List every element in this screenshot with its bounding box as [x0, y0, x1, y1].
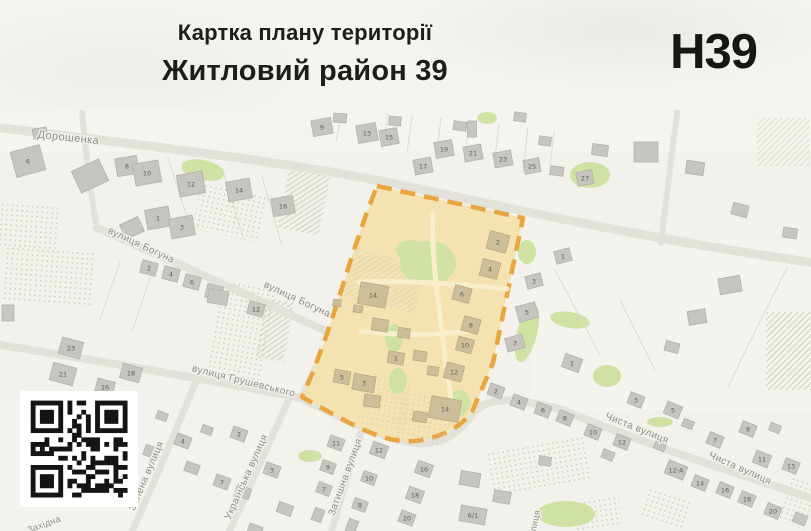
qr-module	[81, 401, 86, 406]
qr-module	[91, 474, 96, 479]
building	[782, 227, 797, 239]
qr-module	[40, 465, 45, 470]
qr-module	[68, 479, 73, 484]
qr-module	[95, 488, 100, 493]
qr-module	[123, 410, 128, 415]
qr-module	[40, 483, 45, 488]
qr-module	[58, 401, 63, 406]
building	[591, 143, 608, 156]
qr-module	[54, 493, 59, 498]
qr-module	[86, 488, 91, 493]
qr-module	[118, 437, 123, 442]
qr-module	[77, 483, 82, 488]
qr-module	[49, 428, 54, 433]
district-code: Н39	[670, 24, 757, 80]
building-number: 12	[375, 446, 383, 454]
qr-module	[40, 401, 45, 406]
qr-module	[86, 414, 91, 419]
qr-module	[49, 451, 54, 456]
building-number: 10	[365, 474, 373, 482]
building-number: 1	[561, 252, 565, 260]
qr-module	[72, 437, 77, 442]
qr-module	[104, 419, 109, 424]
qr-module	[86, 483, 91, 488]
qr-module	[104, 460, 109, 465]
qr-module	[104, 488, 109, 493]
building-number: 10	[461, 341, 469, 349]
building	[333, 299, 342, 307]
building-number: 12	[187, 180, 195, 188]
building-number: 5	[340, 373, 344, 381]
building-number: 18	[127, 369, 135, 377]
qr-module	[58, 405, 63, 410]
qr-module	[31, 474, 36, 479]
qr-module	[31, 424, 36, 429]
building	[513, 112, 526, 123]
qr-module	[123, 405, 128, 410]
qr-module	[100, 401, 105, 406]
qr-module	[77, 493, 82, 498]
building	[413, 350, 427, 362]
qr-module	[58, 479, 63, 484]
qr-module	[45, 465, 50, 470]
qr-module	[45, 419, 50, 424]
qr-module	[123, 419, 128, 424]
building-number: 9	[746, 425, 750, 433]
qr-module	[86, 428, 91, 433]
zone-green	[396, 240, 424, 260]
building-number: 8	[358, 501, 362, 509]
building	[397, 327, 410, 339]
building-number: 7	[322, 485, 326, 493]
qr-module	[114, 488, 119, 493]
qr-module	[100, 470, 105, 475]
qr-module	[95, 437, 100, 442]
building-number: 25	[528, 162, 536, 170]
building-number: 4	[181, 437, 185, 445]
building-number: 13	[363, 129, 371, 137]
qr-module	[86, 437, 91, 442]
qr-module	[49, 465, 54, 470]
building	[2, 305, 14, 321]
qr-module	[40, 474, 45, 479]
building-number: 3	[634, 396, 638, 404]
qr-module	[86, 474, 91, 479]
qr-module	[95, 442, 100, 447]
building-number: 27	[581, 174, 589, 182]
qr-module	[68, 405, 73, 410]
building-number: 6	[26, 157, 30, 165]
qr-module	[58, 456, 63, 461]
qr-module	[72, 479, 77, 484]
building-number: 18	[743, 495, 751, 503]
qr-module	[95, 470, 100, 475]
qr-module	[118, 442, 123, 447]
building-number: 16	[279, 202, 287, 210]
qr-module	[58, 414, 63, 419]
zone-green	[389, 368, 407, 394]
qr-module	[49, 479, 54, 484]
building-number: 4	[488, 265, 492, 273]
qr-module	[49, 419, 54, 424]
qr-module	[91, 488, 96, 493]
doc-type-label: Картка плану території	[80, 20, 530, 46]
qr-module	[123, 456, 128, 461]
building-number: 23	[67, 344, 75, 352]
qr-module	[114, 442, 119, 447]
qr-module	[35, 451, 40, 456]
qr-module	[31, 465, 36, 470]
qr-module	[109, 460, 114, 465]
qr-module	[68, 410, 73, 415]
qr-module	[35, 401, 40, 406]
qr-module	[109, 414, 114, 419]
qr-module	[31, 442, 36, 447]
building-number: 6	[190, 278, 194, 286]
qr-module	[72, 470, 77, 475]
qr-module	[31, 428, 36, 433]
qr-module	[45, 410, 50, 415]
building-number: 6	[541, 406, 545, 414]
qr-module	[49, 414, 54, 419]
qr-module	[86, 465, 91, 470]
qr-module	[123, 424, 128, 429]
qr-module	[104, 479, 109, 484]
qr-module	[40, 428, 45, 433]
qr-module	[95, 410, 100, 415]
qr-module	[31, 401, 36, 406]
qr-module	[109, 428, 114, 433]
building-number: 13	[787, 462, 795, 470]
qr-module	[104, 410, 109, 415]
building-number: 9	[320, 123, 324, 131]
building	[453, 121, 467, 132]
building	[468, 121, 477, 137]
qr-module	[54, 428, 59, 433]
qr-module	[114, 447, 119, 452]
qr-module	[104, 470, 109, 475]
qr-module	[86, 442, 91, 447]
qr-module	[123, 451, 128, 456]
qr-module	[54, 447, 59, 452]
qr-module	[63, 456, 68, 461]
building-number: 8	[469, 321, 473, 329]
qr-module	[114, 410, 119, 415]
qr-module	[77, 414, 82, 419]
qr-module	[91, 465, 96, 470]
qr-module	[86, 479, 91, 484]
qr-module	[45, 493, 50, 498]
qr-module	[95, 414, 100, 419]
qr-module	[31, 488, 36, 493]
building-number: 18	[411, 491, 419, 499]
qr-module	[104, 414, 109, 419]
building-number: 14	[369, 291, 377, 299]
qr-module	[49, 493, 54, 498]
building-number: 6/1	[468, 511, 478, 519]
qr-module	[58, 465, 63, 470]
building-number: 12	[450, 368, 458, 376]
qr-module	[49, 474, 54, 479]
building-number: 3	[362, 379, 366, 387]
qr-module	[77, 460, 82, 465]
qr-module	[31, 447, 36, 452]
building-number: 21	[469, 149, 477, 157]
building-number: 1	[156, 214, 160, 222]
qr-module	[40, 410, 45, 415]
building-number: 7	[220, 478, 224, 486]
qr-module	[77, 442, 82, 447]
qr-module	[118, 428, 123, 433]
qr-module	[109, 419, 114, 424]
qr-module	[35, 442, 40, 447]
building	[538, 136, 551, 147]
qr-module	[114, 456, 119, 461]
qr-module	[54, 401, 59, 406]
qr-module	[68, 483, 73, 488]
qr-module	[100, 428, 105, 433]
qr-module	[123, 474, 128, 479]
qr-module	[45, 474, 50, 479]
qr-module	[31, 451, 36, 456]
qr-module	[95, 424, 100, 429]
qr-module	[114, 470, 119, 475]
qr-module	[72, 456, 77, 461]
qr-module	[81, 437, 86, 442]
building-number: 2	[496, 238, 500, 246]
qr-module	[114, 474, 119, 479]
building-number: 7	[513, 339, 517, 347]
building-number: 10	[143, 169, 151, 177]
building-number: 8	[563, 414, 567, 422]
qr-module	[45, 428, 50, 433]
building-number: 2	[147, 264, 151, 272]
qr-module	[95, 460, 100, 465]
qr-module	[31, 493, 36, 498]
building	[207, 288, 229, 305]
building-number: 9	[326, 463, 330, 471]
qr-module	[58, 437, 63, 442]
qr-module	[40, 442, 45, 447]
building-number: 16	[101, 383, 109, 391]
qr-module	[95, 428, 100, 433]
qr-module	[123, 465, 128, 470]
building-number: 4	[517, 398, 521, 406]
qr-module	[72, 493, 77, 498]
qr-module	[114, 465, 119, 470]
building-number: 12-А	[668, 466, 684, 474]
qr-module	[114, 479, 119, 484]
qr-module	[118, 479, 123, 484]
qr-module	[114, 414, 119, 419]
qr-module	[58, 483, 63, 488]
qr-module	[54, 465, 59, 470]
qr-module	[45, 442, 50, 447]
qr-module	[45, 451, 50, 456]
building-number: 20	[403, 514, 411, 522]
building	[685, 160, 705, 175]
building-number: 19	[440, 145, 448, 153]
building	[538, 456, 551, 467]
qr-module	[109, 410, 114, 415]
building-number: 17	[419, 162, 427, 170]
building-number: 15	[385, 133, 393, 141]
qr-module	[91, 456, 96, 461]
qr-module	[81, 451, 86, 456]
building-number: 14	[235, 186, 243, 194]
qr-module	[40, 451, 45, 456]
qr-module	[49, 410, 54, 415]
qr-module	[86, 424, 91, 429]
building	[634, 142, 658, 162]
plan-card: 6810121416139131517192123252724681223211…	[0, 0, 811, 531]
qr-module	[81, 456, 86, 461]
building-number: 8	[125, 162, 129, 170]
qr-module	[118, 488, 123, 493]
qr-module	[123, 401, 128, 406]
qr-module	[58, 493, 63, 498]
building-number: 5	[525, 308, 529, 316]
qr-module	[45, 483, 50, 488]
qr-module	[114, 401, 119, 406]
building-number: 14	[441, 405, 449, 413]
qr-module	[77, 401, 82, 406]
building-number: 7	[713, 436, 717, 444]
qr-module	[31, 410, 36, 415]
building-number: 16	[721, 486, 729, 494]
qr-module	[68, 447, 73, 452]
qr-module	[49, 483, 54, 488]
qr-module	[58, 419, 63, 424]
building	[687, 309, 707, 326]
qr-module	[77, 470, 82, 475]
qr-module	[123, 414, 128, 419]
qr-module	[40, 493, 45, 498]
title-block: Картка плану території Житловий район 39	[80, 0, 530, 88]
qr-module	[95, 483, 100, 488]
qr-module	[68, 465, 73, 470]
qr-module	[49, 401, 54, 406]
qr-module	[118, 401, 123, 406]
qr-module	[72, 433, 77, 438]
qr-module	[123, 442, 128, 447]
card-header: Картка плану території Житловий район 39…	[0, 0, 811, 110]
building	[353, 305, 363, 313]
building	[459, 470, 481, 487]
qr-module	[91, 442, 96, 447]
qr-module	[58, 410, 63, 415]
qr-module	[114, 460, 119, 465]
building-number: 11	[758, 455, 766, 463]
qr-module	[31, 479, 36, 484]
qr-module	[104, 428, 109, 433]
building-number: 1	[570, 359, 574, 367]
qr-module	[114, 428, 119, 433]
building-number: 3	[180, 223, 184, 231]
building	[427, 366, 439, 376]
qr-module	[81, 410, 86, 415]
building-number: 12	[618, 438, 626, 446]
qr-module	[40, 414, 45, 419]
qr-module	[77, 433, 82, 438]
qr-module	[77, 424, 82, 429]
qr-module	[45, 479, 50, 484]
qr-module	[100, 488, 105, 493]
qr-module	[58, 428, 63, 433]
building	[493, 490, 512, 505]
building-number: 10	[589, 428, 597, 436]
qr-module	[35, 493, 40, 498]
qr-module	[77, 428, 82, 433]
building-number: 1	[394, 354, 398, 362]
qr-module	[118, 465, 123, 470]
qr-module	[81, 483, 86, 488]
qr-module	[104, 442, 109, 447]
qr-module	[58, 447, 63, 452]
building	[363, 394, 381, 408]
building	[389, 116, 402, 126]
building-number: 12	[252, 305, 260, 313]
qr-module	[31, 405, 36, 410]
qr-module	[68, 401, 73, 406]
qr-module	[40, 479, 45, 484]
qr-code	[20, 391, 138, 507]
qr-module	[109, 401, 114, 406]
qr-module	[58, 474, 63, 479]
qr-module	[68, 442, 73, 447]
building	[718, 275, 742, 295]
building	[333, 113, 347, 123]
page-title: Житловий район 39	[80, 55, 530, 88]
building-number: 3	[532, 277, 536, 285]
qr-module	[100, 460, 105, 465]
building	[550, 166, 564, 177]
qr-module	[86, 419, 91, 424]
qr-module	[72, 424, 77, 429]
qr-module	[91, 447, 96, 452]
qr-module	[49, 447, 54, 452]
qr-module	[100, 483, 105, 488]
building-number: 5	[671, 406, 675, 414]
building-number: 6	[460, 290, 464, 298]
building	[412, 411, 427, 423]
qr-module	[35, 428, 40, 433]
qr-module	[31, 483, 36, 488]
building-number: 4	[169, 270, 173, 278]
qr-module	[35, 465, 40, 470]
building-number: 16	[420, 465, 428, 473]
building-number: 23	[499, 155, 507, 163]
building-number: 20	[769, 507, 777, 515]
building-number: 14	[696, 479, 704, 487]
qr-module	[40, 419, 45, 424]
building-number: 2	[494, 387, 498, 395]
qr-module	[123, 488, 128, 493]
qr-module	[68, 428, 73, 433]
qr-module	[95, 401, 100, 406]
qr-module	[72, 419, 77, 424]
qr-module	[58, 488, 63, 493]
qr-module	[104, 483, 109, 488]
qr-module	[31, 419, 36, 424]
qr-module	[58, 470, 63, 475]
qr-module	[104, 401, 109, 406]
building-number: 21	[59, 370, 67, 378]
qr-module	[114, 419, 119, 424]
qr-module	[109, 483, 114, 488]
qr-module	[91, 437, 96, 442]
qr-module	[45, 437, 50, 442]
